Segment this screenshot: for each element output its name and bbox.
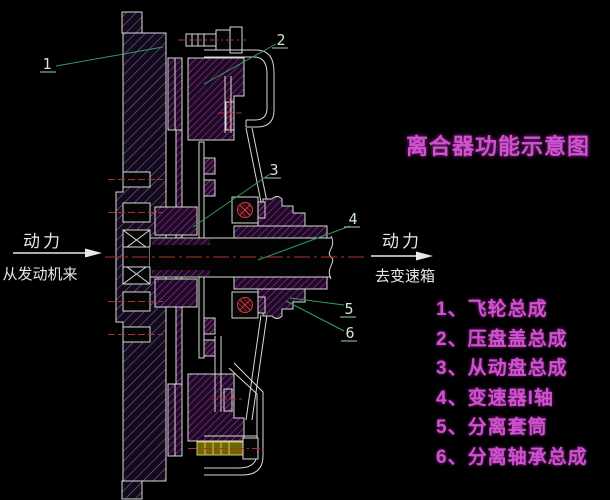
callout-number-2: 2 xyxy=(276,31,285,49)
callout-number-6: 6 xyxy=(345,324,354,342)
crank-flange-box xyxy=(123,203,150,222)
pressure-plate-bottom xyxy=(188,374,244,441)
legend-item-3: 3、从动盘总成 xyxy=(436,354,588,384)
legend-item-2: 2、压盘盖总成 xyxy=(436,325,588,355)
power-arrowhead-right xyxy=(416,252,433,261)
leader-6 xyxy=(286,301,344,331)
disc-hub-bottom xyxy=(155,279,197,307)
pressure-plate-top xyxy=(188,58,244,140)
shaft-spline-top xyxy=(152,239,210,245)
damper-spring xyxy=(204,318,215,334)
power-arrowhead-left xyxy=(85,249,102,258)
power-flow-left: 动力 从发动机来 xyxy=(2,232,102,283)
bearing-seal-top xyxy=(258,202,265,218)
crank-flange-box xyxy=(123,292,150,311)
shaft-spline-bottom xyxy=(152,270,210,276)
legend-item-1: 1、飞轮总成 xyxy=(436,295,588,325)
ring-gear-tooth-top xyxy=(122,12,142,33)
diagram-title: 离合器功能示意图 xyxy=(406,129,606,161)
legend-item-5: 5、分离套筒 xyxy=(436,413,588,443)
power-label-left: 动力 xyxy=(23,232,63,251)
to-gearbox-label: 去变速箱 xyxy=(375,268,435,285)
from-engine-label: 从发动机来 xyxy=(2,266,77,283)
callout-number-5: 5 xyxy=(344,300,353,318)
bearing-seal-bottom xyxy=(258,297,265,313)
crank-flange-box xyxy=(123,327,150,342)
parts-legend: 1、飞轮总成 2、压盘盖总成 3、从动盘总成 4、变速器I轴 5、分离套筒 6、… xyxy=(436,295,588,472)
spring-finger-top xyxy=(246,128,267,202)
sleeve-tube-top xyxy=(234,226,327,238)
power-flow-right: 动力 去变速箱 xyxy=(371,232,435,285)
disc-hub-top xyxy=(155,207,197,235)
callout-number-3: 3 xyxy=(269,161,278,179)
fulcrum-rivet-bottom xyxy=(224,389,232,411)
cad-canvas: 1 2 3 4 5 6 动力 从发动机来 动力 去变速箱 离合器功能示意图 1、… xyxy=(0,0,610,500)
damper-spring xyxy=(204,158,215,174)
damper-spring xyxy=(204,180,215,196)
power-label-right: 动力 xyxy=(382,232,422,251)
damper-spring xyxy=(204,340,215,356)
crank-flange-box xyxy=(123,172,150,187)
legend-item-4: 4、变速器I轴 xyxy=(436,384,588,414)
ring-gear-tooth-bottom xyxy=(122,481,142,499)
callout-number-1: 1 xyxy=(42,55,51,73)
sleeve-tube-bottom xyxy=(234,277,327,289)
callout-number-4: 4 xyxy=(348,210,357,228)
legend-item-6: 6、分离轴承总成 xyxy=(436,443,588,473)
